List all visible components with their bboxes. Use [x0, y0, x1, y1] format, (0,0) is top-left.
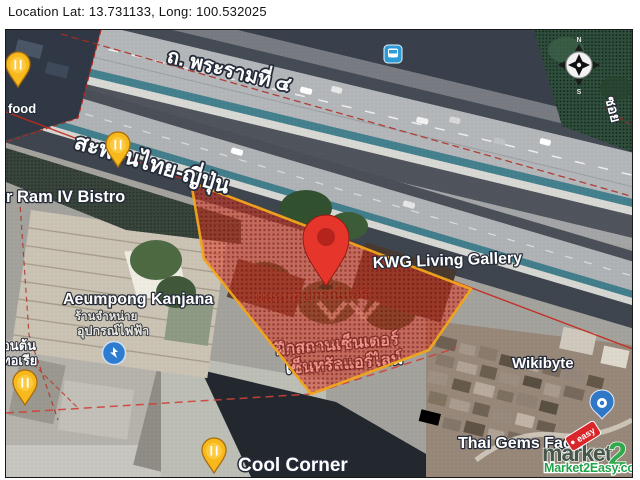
location-coordinates-label: Location Lat: 13.731133, Long: 100.53202… [8, 4, 267, 19]
left-edge-label1: อนต้น [6, 338, 36, 353]
food-partial-label: food [8, 101, 36, 116]
left-edge-label2: ทอเรีย [6, 353, 37, 368]
aeumpong-sub2-label: อุปกรณ์ไฟฟ้า [77, 323, 149, 339]
page: { "header": { "location_label": "Locatio… [0, 0, 640, 480]
electrical-shop-icon [103, 342, 126, 365]
satellite-map[interactable]: Aeumpong Kanjana แผนกอุปกรณ์แอร์ ฝึกสถาน… [5, 29, 633, 478]
bus-stop-icon [384, 45, 402, 63]
aeumpong-sub1-label: ร้านจำหน่าย [75, 309, 137, 323]
bistro-label: r Ram IV Bistro [6, 188, 125, 206]
wikibyte-label: Wikibyte [512, 355, 574, 372]
watermark-site-url: Market2Easy.com [544, 461, 632, 475]
cool-corner-label: Cool Corner [238, 455, 348, 476]
compass-south-label: S [577, 89, 582, 96]
satellite-map-canvas: Aeumpong Kanjana แผนกอุปกรณ์แอร์ ฝึกสถาน… [6, 30, 632, 477]
compass-north-label: N [576, 37, 581, 44]
